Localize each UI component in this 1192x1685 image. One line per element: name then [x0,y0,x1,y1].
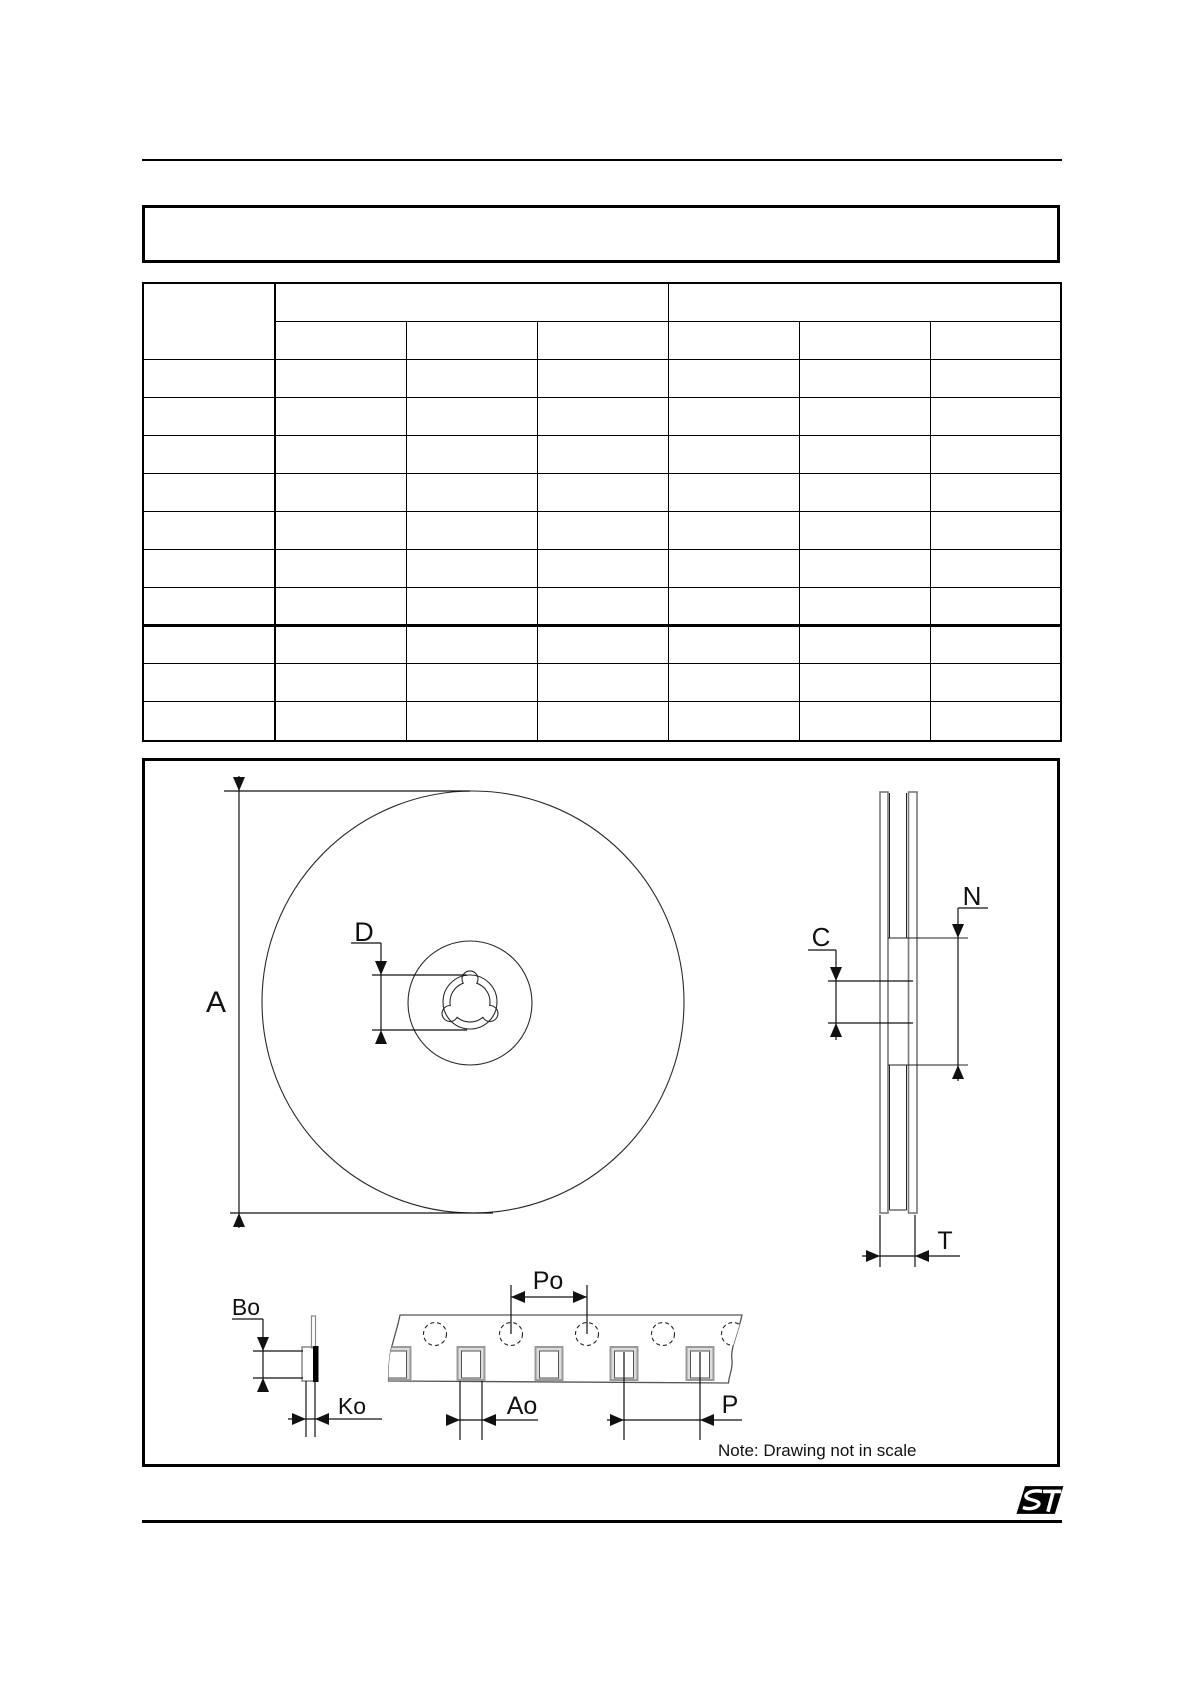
title-box [142,205,1060,263]
datasheet-page: A D [0,0,1192,1685]
drawing-note: Note: Drawing not in scale [718,1441,916,1460]
dim-label-n: N [963,881,982,911]
dim-label-t: T [937,1227,952,1255]
footer-rule [142,1520,1062,1523]
figure-box: A D [142,758,1060,1472]
table-row [143,587,1061,625]
tape-strip [384,1315,745,1383]
dim-label-a: A [206,986,226,1019]
table-row [143,473,1061,511]
dim-label-ko: Ko [338,1393,366,1419]
st-logo [1014,1484,1068,1521]
table-row [143,511,1061,549]
table-row [143,359,1061,397]
table-row [143,625,1061,663]
table-header-row-1 [143,283,1061,321]
component-in-pocket [313,1346,319,1382]
table-row [143,701,1061,741]
dim-label-po: Po [533,1267,564,1295]
flange-left [880,792,888,1213]
dim-label-ao: Ao [507,1392,538,1420]
dim-label-p: P [722,1391,739,1419]
header-rule [142,159,1062,161]
tape-reel-drawing: A D [142,758,1060,1467]
table-row [143,663,1061,701]
dim-label-c: C [812,922,831,952]
flange-right [909,792,918,1213]
table-header-row-2 [143,321,1061,359]
table-row [143,435,1061,473]
table-row [143,397,1061,435]
table-row [143,549,1061,587]
tape-reel-spec-table [142,282,1062,742]
dim-label-d: D [354,917,374,947]
dim-label-bo: Bo [232,1294,260,1320]
